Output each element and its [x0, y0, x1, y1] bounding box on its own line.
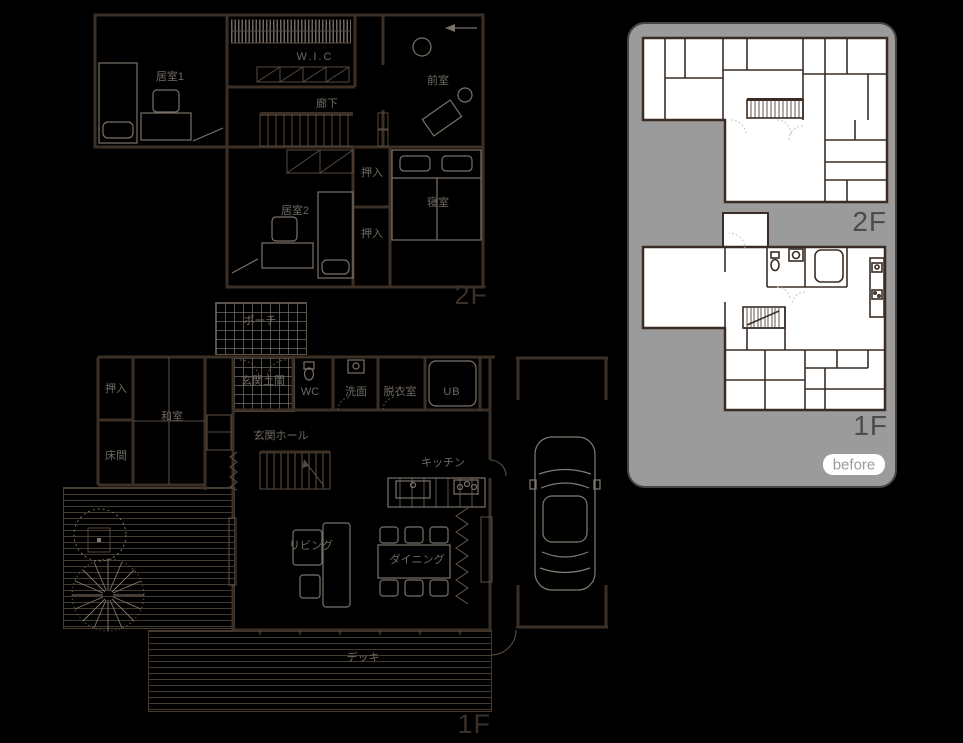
stairs-1f	[260, 452, 330, 489]
wic-hanger-racks	[231, 25, 351, 43]
kitchen-sink	[396, 481, 430, 498]
room-label-washroom: 洗面	[345, 385, 367, 398]
room-label-bedroom: 寝室	[427, 195, 449, 209]
after-plan-2f-drawing: 居室1 W.I.C 廊下 前室 居室2 押入 押入 寝室 2F	[90, 10, 490, 310]
desk-room1	[141, 113, 191, 140]
desk-room2	[262, 243, 313, 268]
room-label-tokonoma: 床間	[105, 448, 127, 462]
north-arrow-icon	[445, 24, 477, 32]
room-label-closet-upper: 押入	[361, 165, 383, 179]
desk-anteroom	[422, 100, 461, 136]
room-label-entrance-hall: 玄関ホール	[254, 428, 309, 442]
room-label-porch: ポーチ	[244, 314, 277, 327]
garden-tree	[72, 509, 144, 631]
room-label-closet: 押入	[105, 381, 127, 395]
room-label-unit-bath: UB	[443, 386, 460, 398]
sofa-set	[293, 523, 350, 607]
room-label-deck: デッキ	[347, 650, 380, 664]
sliding-closet-doors	[257, 67, 349, 82]
before-badge-label: before	[833, 457, 876, 474]
room-label-wc: WC	[301, 386, 319, 398]
before-panel: 2F	[627, 22, 897, 488]
washbasin	[348, 360, 364, 373]
room-label-washitsu: 和室	[161, 409, 183, 423]
double-bed-bedroom	[392, 150, 481, 240]
before-plan-1f: 1F	[643, 213, 888, 441]
room-label-closet-lower: 押入	[361, 226, 383, 240]
floorplan-canvas: 居室1 W.I.C 廊下 前室 居室2 押入 押入 寝室 2F	[0, 0, 963, 743]
room-label-entrance-doma: 玄関土間	[241, 373, 285, 387]
structure-1f	[133, 357, 516, 655]
room-label-hallway: 廊下	[316, 96, 338, 110]
toilet	[305, 368, 314, 380]
panel-floor-label-2f: 2F	[852, 206, 887, 237]
chair-room1	[153, 90, 179, 112]
before-plan-2f: 2F	[643, 38, 887, 237]
room-label-kitchen: キッチン	[421, 456, 465, 469]
panel-floor-label-1f: 1F	[853, 410, 888, 441]
stool-anteroom	[413, 38, 431, 56]
furniture-2f	[99, 24, 481, 278]
before-badge: before	[823, 454, 885, 475]
after-plan-1f-drawing: ポーチ 押入 和室 床間 玄関土間 WC 洗面 脱衣室 UB 玄関ホール キッチ…	[60, 300, 620, 740]
kitchen-counter	[388, 478, 485, 507]
room-label-living: リビング	[289, 538, 333, 552]
living-window	[229, 518, 236, 585]
room-label-room2: 居室2	[281, 203, 309, 217]
room-label-room1: 居室1	[156, 69, 184, 83]
bed-room1	[99, 63, 137, 143]
gate-door-swing	[491, 630, 516, 655]
room-label-wic: W.I.C	[297, 51, 334, 63]
bed-room2	[318, 192, 353, 278]
bathtub	[429, 361, 476, 406]
room-label-dressing-room: 脱衣室	[384, 384, 417, 398]
before-plans-drawing: 2F	[627, 22, 897, 488]
room-label-dining: ダイニング	[390, 552, 445, 566]
curtain-zigzag	[456, 508, 468, 604]
car-top-view	[530, 437, 600, 590]
floor-label-1f: 1F	[457, 709, 491, 739]
structure-2f	[257, 67, 388, 173]
room-label-anteroom: 前室	[427, 73, 449, 87]
